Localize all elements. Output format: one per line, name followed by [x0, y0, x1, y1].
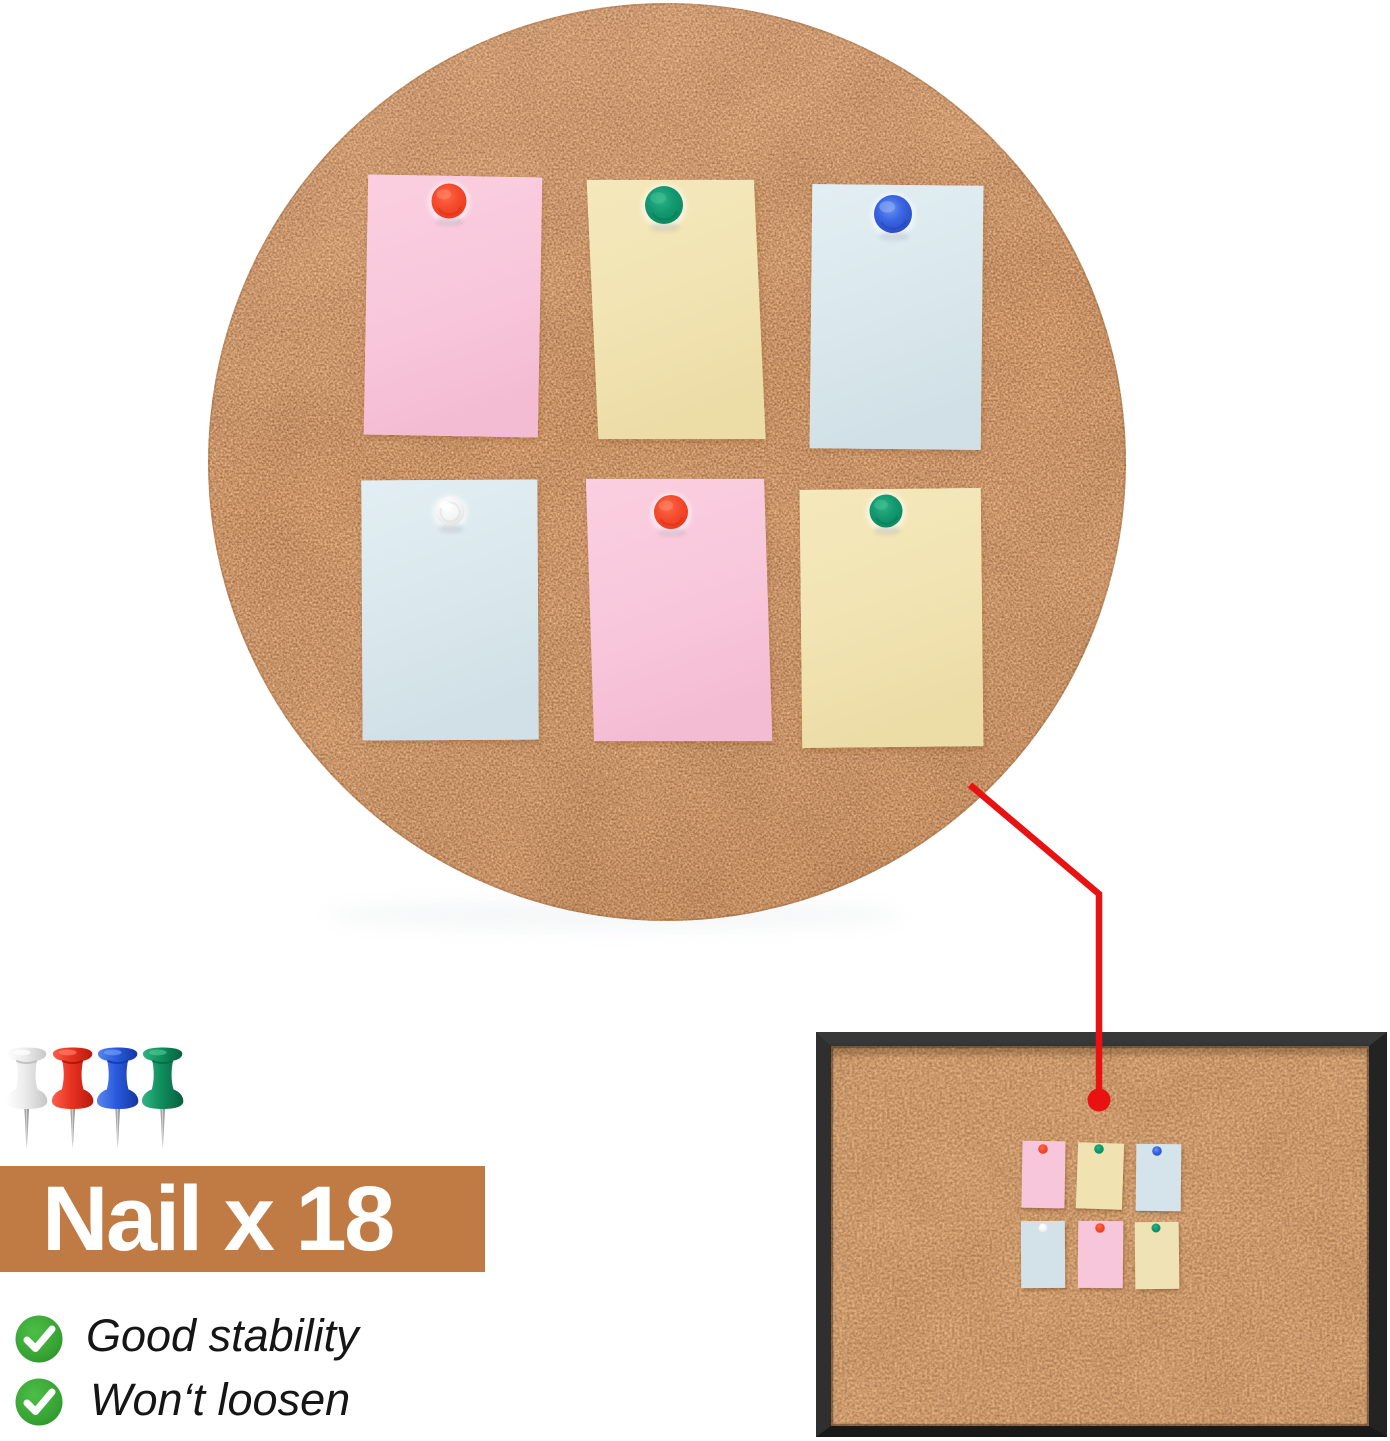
svg-text:Won‘t loosen: Won‘t loosen [90, 1374, 350, 1425]
svg-text:Good stability: Good stability [86, 1310, 361, 1361]
svg-text:Nail x 18: Nail x 18 [42, 1168, 393, 1270]
